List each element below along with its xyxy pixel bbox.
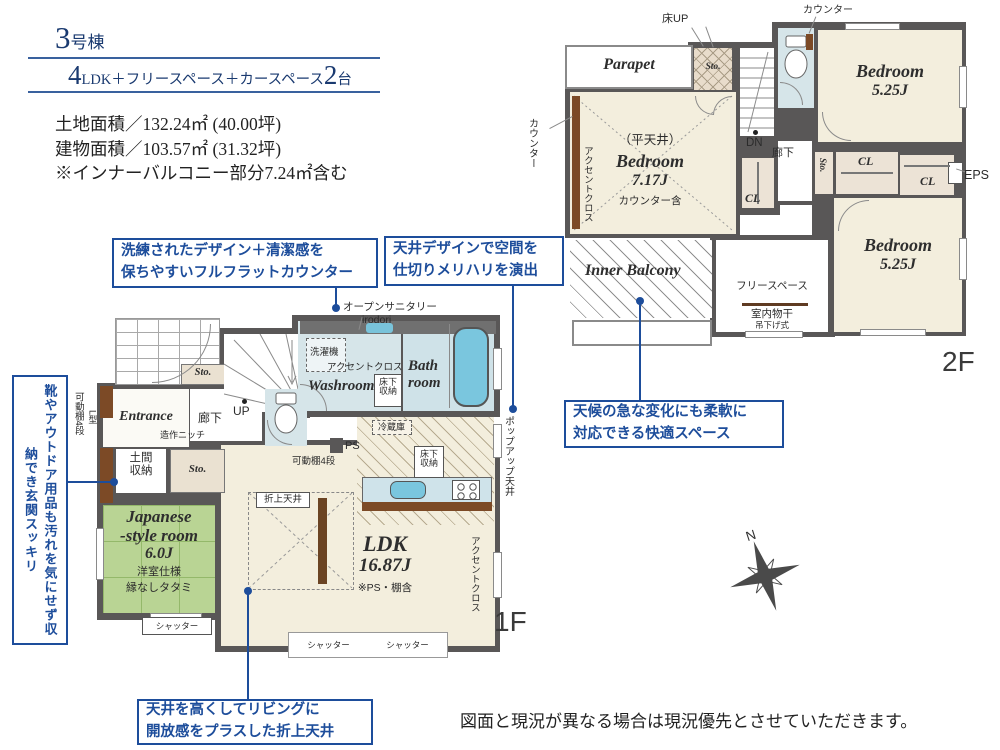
- counter-2f-top-label: カウンター: [803, 5, 853, 17]
- window-bed1-top: [845, 23, 900, 30]
- bedroom1-size: 5.25J: [818, 82, 962, 100]
- jp-note-2: 縁なしタタミ: [103, 579, 215, 595]
- bathroom-label-1: Bath: [408, 358, 441, 375]
- shutter-ldk-1: シャッター: [307, 639, 350, 651]
- leader-counter-dot: [332, 304, 340, 312]
- jp-label-2: -style room: [103, 527, 215, 546]
- unit-title: 3号棟: [55, 20, 105, 56]
- leader-balcony: [639, 302, 641, 400]
- shutter-jp: シャッター: [142, 617, 212, 635]
- stairs-2f-lines: [740, 48, 774, 136]
- callout-flat-counter-line2: 保ちやすいフルフラットカウンター: [121, 263, 369, 285]
- bedroom3-size: 5.25J: [834, 256, 962, 274]
- callout-ceiling-design-line2: 仕切りメリハリを演出: [393, 261, 555, 283]
- plan-description: LDK＋フリースペース＋カースペース: [82, 72, 324, 88]
- dn-label: DN: [746, 137, 763, 150]
- window-freespace-bottom: [745, 331, 803, 338]
- header-rule-top: [28, 57, 380, 59]
- window-bath-right: [493, 348, 502, 390]
- jp-note-1: 洋室仕様: [103, 563, 215, 579]
- window-kitchen-right: [493, 424, 502, 458]
- callout-flat-counter-line1: 洗練されたデザイン＋清潔感を: [121, 241, 369, 263]
- kitchen-stove: [452, 480, 480, 500]
- bedroom3-label: Bedroom: [834, 236, 962, 256]
- accent-washroom-label: アクセントクロス: [327, 363, 403, 374]
- leader-popup-ceiling: [512, 282, 514, 408]
- floor-storage-washroom-l2: 収納: [375, 387, 401, 396]
- label-niche: 造作ニッチ: [160, 430, 205, 440]
- callout-living-ceiling: 天井を高くしてリビングに 開放感をプラスした折上天井: [137, 699, 373, 745]
- header-rule-bottom: [28, 91, 380, 93]
- callout-entrance-storage: 靴やアウトドア用品も汚れを気にせず収納でき玄関スッキリ: [12, 375, 68, 645]
- callout-flat-counter: 洗練されたデザイン＋清潔感を 保ちやすいフルフラットカウンター: [112, 238, 378, 288]
- shutter-ldk-box: シャッター シャッター: [288, 632, 448, 658]
- kitchen-sink: [390, 481, 426, 499]
- floorplan-flyer: 3号棟 4LDK＋フリースペース＋カースペース2台 土地面積／132.24㎡ (…: [0, 0, 1000, 750]
- bedroom2-size: 7.17J: [585, 172, 715, 190]
- plan-car-suffix: 台: [337, 72, 352, 88]
- label-l-type: L型: [87, 410, 97, 424]
- plan-ldk-count: 4: [68, 60, 82, 90]
- bedroom3-labels: Bedroom 5.25J: [834, 236, 962, 273]
- ldk-label: LDK: [330, 532, 440, 556]
- floor-up-label: 床UP: [662, 13, 688, 26]
- callout-living-ceiling-line2: 開放感をプラスした折上天井: [146, 722, 364, 744]
- ldk-note: ※PS・棚含: [330, 580, 440, 595]
- flat-ceiling-label: （平天井）: [590, 133, 710, 147]
- bath-partition: [449, 324, 450, 408]
- bedroom2-label: Bedroom: [585, 152, 715, 172]
- room-hallway-1f-label: 廊下: [198, 412, 222, 426]
- room-sto-small-2f-label: Sto.: [817, 158, 827, 172]
- bedroom1-labels: Bedroom 5.25J: [818, 62, 962, 99]
- compass-rose: N: [720, 528, 810, 624]
- popup-ceiling-label: ポップアップ天井: [502, 416, 514, 496]
- cl1-label: CL: [858, 155, 873, 168]
- disclaimer: 図面と現況が異なる場合は現況優先とさせていただきます。: [460, 712, 917, 732]
- leader-oriage-dot: [244, 587, 252, 595]
- land-area: 土地面積／132.24㎡ (40.00坪): [55, 112, 348, 137]
- doma-line1: 土間: [116, 452, 166, 465]
- callout-ceiling-design: 天井デザインで空間を 仕切りメリハリを演出: [384, 236, 564, 286]
- compass-n: N: [744, 528, 758, 544]
- room-parapet-label: Parapet: [565, 56, 693, 74]
- leader-oriage: [247, 592, 249, 699]
- bathroom-labels: Bath room: [408, 358, 441, 391]
- cl1-rail: [841, 172, 893, 174]
- stairs-2f: [740, 48, 774, 136]
- callout-ceiling-design-line1: 天井デザインで空間を: [393, 239, 555, 261]
- folded-ceiling-pillar: [318, 498, 327, 584]
- leader-doma-dot: [110, 478, 118, 486]
- room-sto-2f-label: Sto.: [694, 62, 732, 72]
- plan-line: 4LDK＋フリースペース＋カースペース2台: [68, 60, 352, 91]
- kitchen-counter-wood: [362, 502, 492, 511]
- unit-suffix: 号棟: [71, 33, 105, 52]
- inner-balcony-label: Inner Balcony: [585, 262, 681, 280]
- callout-living-ceiling-line1: 天井を高くしてリビングに: [146, 700, 364, 722]
- laundry-label: 室内物干: [716, 308, 828, 320]
- area-block: 土地面積／132.24㎡ (40.00坪) 建物面積／103.57㎡ (31.3…: [55, 112, 348, 186]
- fridge-label: 冷蔵庫: [378, 422, 405, 432]
- shelf-ldk-label: 可動棚4段: [292, 457, 335, 468]
- label-shelf-left: 可動棚4段: [72, 392, 83, 435]
- bathtub: [453, 327, 489, 407]
- unit-number: 3: [55, 20, 71, 55]
- washer-label: 洗濯機: [310, 348, 339, 359]
- irodori-label: irodori: [362, 314, 391, 326]
- leader-balcony-dot: [636, 297, 644, 305]
- ps-duct: [330, 438, 343, 453]
- laundry-pole: [742, 303, 808, 306]
- floor-storage-kitchen-l2: 収納: [415, 459, 443, 468]
- compass: N: [720, 528, 810, 629]
- dn-dot: [753, 130, 758, 135]
- building-area: 建物面積／103.57㎡ (31.32坪): [55, 137, 348, 162]
- room-sto2-1f-label: Sto.: [170, 463, 225, 475]
- eps-box: [948, 162, 963, 184]
- counter-2f-left-label: カウンター: [526, 118, 538, 168]
- open-sanitary-label: オープンサニタリー: [343, 301, 437, 313]
- ldk-size: 16.87J: [330, 556, 440, 577]
- balcony-rail: [572, 320, 712, 346]
- floor-storage-washroom: 床下 収納: [374, 374, 402, 407]
- callout-weather-line2: 対応できる快適スペース: [573, 424, 775, 446]
- ps-label: PS: [345, 440, 360, 453]
- floor-storage-kitchen: 床下 収納: [414, 446, 444, 478]
- plan-car-count: 2: [324, 60, 338, 90]
- shutter-ldk-2: シャッター: [386, 639, 429, 651]
- area-note: ※インナーバルコニー部分7.24㎡含む: [55, 161, 348, 186]
- shoe-shelf-lower: [100, 448, 113, 503]
- oriage-label: 折上天井: [256, 492, 310, 508]
- cl-bed2-label: CL: [745, 192, 760, 205]
- floor2-label: 2F: [942, 346, 975, 378]
- washroom-label: Washroom: [308, 378, 374, 395]
- jp-label-size: 6.0J: [103, 545, 215, 563]
- leader-popup-ceiling-dot: [509, 405, 517, 413]
- label-up: UP: [233, 405, 250, 419]
- jp-label-1: Japanese: [103, 508, 215, 527]
- room-sto1-1f-label: Sto.: [181, 367, 225, 379]
- stove-burners: [453, 481, 481, 501]
- window-ldk-right: [493, 552, 502, 598]
- accent-ldk-label: アクセントクロス: [468, 536, 479, 612]
- cl2-rail: [904, 165, 950, 167]
- bathroom-label-2: room: [408, 375, 441, 392]
- cl2-label: CL: [920, 175, 935, 188]
- window-bed3-bottom: [860, 329, 926, 336]
- floor1-label: 1F: [494, 606, 527, 638]
- callout-weather-line1: 天候の急な変化にも柔軟に: [573, 402, 775, 424]
- toilet-2f-counter: [806, 34, 813, 50]
- laundry-sub-label: 吊下げ式: [716, 321, 828, 331]
- room-entrance-label: Entrance: [106, 409, 186, 424]
- bedroom2-labels: Bedroom 7.17J カウンター含: [585, 152, 715, 208]
- eps-label: EPS: [964, 168, 989, 182]
- freespace-label: フリースペース: [716, 280, 828, 292]
- ldk-labels: LDK 16.87J ※PS・棚含: [330, 532, 440, 595]
- accent-2f-label: アクセントクロス: [581, 146, 592, 222]
- callout-weather-space: 天候の急な変化にも柔軟に 対応できる快適スペース: [564, 400, 784, 448]
- bedroom2-counter-strip: [572, 96, 580, 229]
- hallway-2f-label: 廊下: [772, 147, 794, 160]
- doma-line2: 収納: [116, 465, 166, 478]
- room-japanese-labels: Japanese -style room 6.0J 洋室仕様 縁なしタタミ: [103, 508, 215, 595]
- counter-incl-label: カウンター含: [585, 193, 715, 208]
- bedroom1-label: Bedroom: [818, 62, 962, 82]
- room-doma-label: 土間 収納: [116, 452, 166, 478]
